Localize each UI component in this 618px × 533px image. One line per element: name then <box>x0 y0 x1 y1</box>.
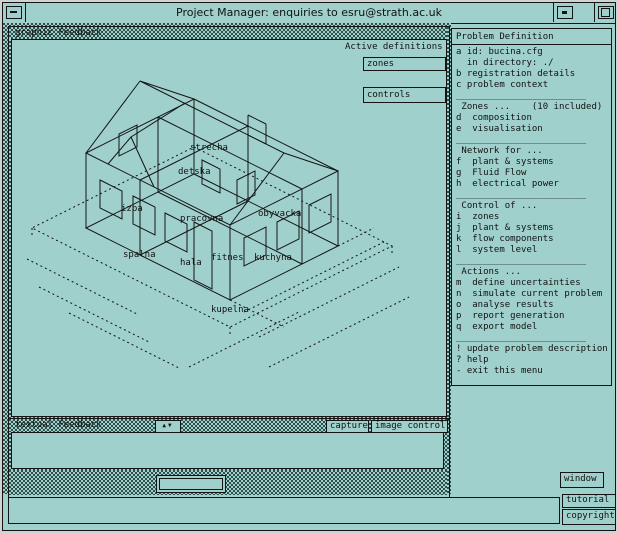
menu-item-directory: in directory: ./ <box>452 58 611 69</box>
menu-separator: ________________________ <box>452 91 611 102</box>
zone-label-fitnes: fitnes <box>211 254 244 263</box>
menu-header: Problem Definition <box>452 31 611 45</box>
feedback-text-area[interactable] <box>11 432 444 469</box>
copyright-button[interactable]: copyright <box>562 509 616 525</box>
zone-label-kupelna: kupelna <box>211 306 249 315</box>
window-menu-button[interactable] <box>3 3 26 22</box>
menu-item-p-report[interactable]: p report generation <box>452 311 611 322</box>
maximize-icon <box>601 8 610 17</box>
zone-label-detska: detska <box>178 168 211 177</box>
zone-label-hala: hala <box>180 259 202 268</box>
iconify-button[interactable] <box>553 3 575 22</box>
menu-separator: ________________________ <box>452 135 611 146</box>
iconify-icon <box>562 11 567 14</box>
menu-item-help[interactable]: ? help <box>452 355 611 366</box>
window-button[interactable]: window <box>560 472 604 488</box>
zones-definition-box[interactable]: zones <box>363 57 446 71</box>
tutorial-button[interactable]: tutorial <box>562 494 616 508</box>
menu-item-k-flow-components[interactable]: k flow components <box>452 234 611 245</box>
textual-feedback-header: textual Feedback ▲▼ capture image contro… <box>9 419 447 432</box>
maximize-button[interactable] <box>594 3 615 22</box>
project-manager-window: Project Manager: enquiries to esru@strat… <box>2 2 616 531</box>
zone-label-izba: izba <box>121 205 143 214</box>
feedback-scrollbar[interactable] <box>9 470 447 495</box>
menu-item-l-system-level[interactable]: l system level <box>452 245 611 256</box>
menu-item-h-electrical-power[interactable]: h electrical power <box>452 179 611 190</box>
graphic-feedback-title: graphic Feedback <box>9 28 102 38</box>
textual-feedback-window: textual Feedback ▲▼ capture image contro… <box>8 418 450 498</box>
graphic-feedback-window: graphic Feedback <box>8 26 450 420</box>
menu-item-j-plant-systems[interactable]: j plant & systems <box>452 223 611 234</box>
zone-label-obyvacka: obyvacka <box>258 210 301 219</box>
menu-item-m-uncertainties[interactable]: m define uncertainties <box>452 278 611 289</box>
menu-item-e-visualisation[interactable]: e visualisation <box>452 124 611 135</box>
menu-section-actions: Actions ... <box>452 267 611 278</box>
menu-section-zones: Zones ... (10 included) <box>452 102 611 113</box>
menu-item-i-zones[interactable]: i zones <box>452 212 611 223</box>
menu-item-q-export[interactable]: q export model <box>452 322 611 333</box>
feedback-scrollbar-thumb-inner <box>159 478 223 490</box>
zone-label-kuchyna: kuchyna <box>254 254 292 263</box>
menu-item-n-simulate[interactable]: n simulate current problem <box>452 289 611 300</box>
menu-item-g-fluid-flow[interactable]: g Fluid Flow <box>452 168 611 179</box>
menu-separator: ________________________ <box>452 333 611 344</box>
feedback-scrollbar-thumb[interactable] <box>156 475 226 493</box>
graphic-canvas[interactable]: Active definitions zones controls strech… <box>11 39 447 417</box>
menu-separator: ________________________ <box>452 256 611 267</box>
menu-section-control: Control of ... <box>452 201 611 212</box>
active-definitions-label: Active definitions <box>345 42 443 52</box>
graphic-feedback-header: graphic Feedback <box>9 27 447 39</box>
menu-item-o-analyse[interactable]: o analyse results <box>452 300 611 311</box>
window-title: Project Manager: enquiries to esru@strat… <box>3 3 615 22</box>
menu-section-network: Network for ... <box>452 146 611 157</box>
menu-item-b-registration[interactable]: b registration details <box>452 69 611 80</box>
menu-item-d-composition[interactable]: d composition <box>452 113 611 124</box>
menu-item-a-id[interactable]: a id: bucina.cfg <box>452 47 611 58</box>
menu-panel: Problem Definition a id: bucina.cfg in d… <box>451 28 612 386</box>
textual-feedback-title: textual Feedback <box>9 420 102 430</box>
menu-item-f-plant-systems[interactable]: f plant & systems <box>452 157 611 168</box>
zone-label-pracovna: pracovna <box>180 215 223 224</box>
command-input-box[interactable] <box>8 497 560 524</box>
minimize-dash-icon <box>10 11 17 13</box>
controls-definition-box[interactable]: controls <box>363 87 446 103</box>
app-window: Project Manager: enquiries to esru@strat… <box>0 0 618 533</box>
menu-item-exit[interactable]: - exit this menu <box>452 366 611 377</box>
menu-item-c-context[interactable]: c problem context <box>452 80 611 91</box>
zone-label-strecha: strecha <box>190 144 228 153</box>
scroll-down-icon[interactable]: ▼ <box>168 422 174 429</box>
menu-separator: ________________________ <box>452 190 611 201</box>
window-titlebar[interactable]: Project Manager: enquiries to esru@strat… <box>3 3 615 24</box>
zone-label-spalna: spalna <box>123 251 156 260</box>
menu-item-update-description[interactable]: ! update problem description <box>452 344 611 355</box>
